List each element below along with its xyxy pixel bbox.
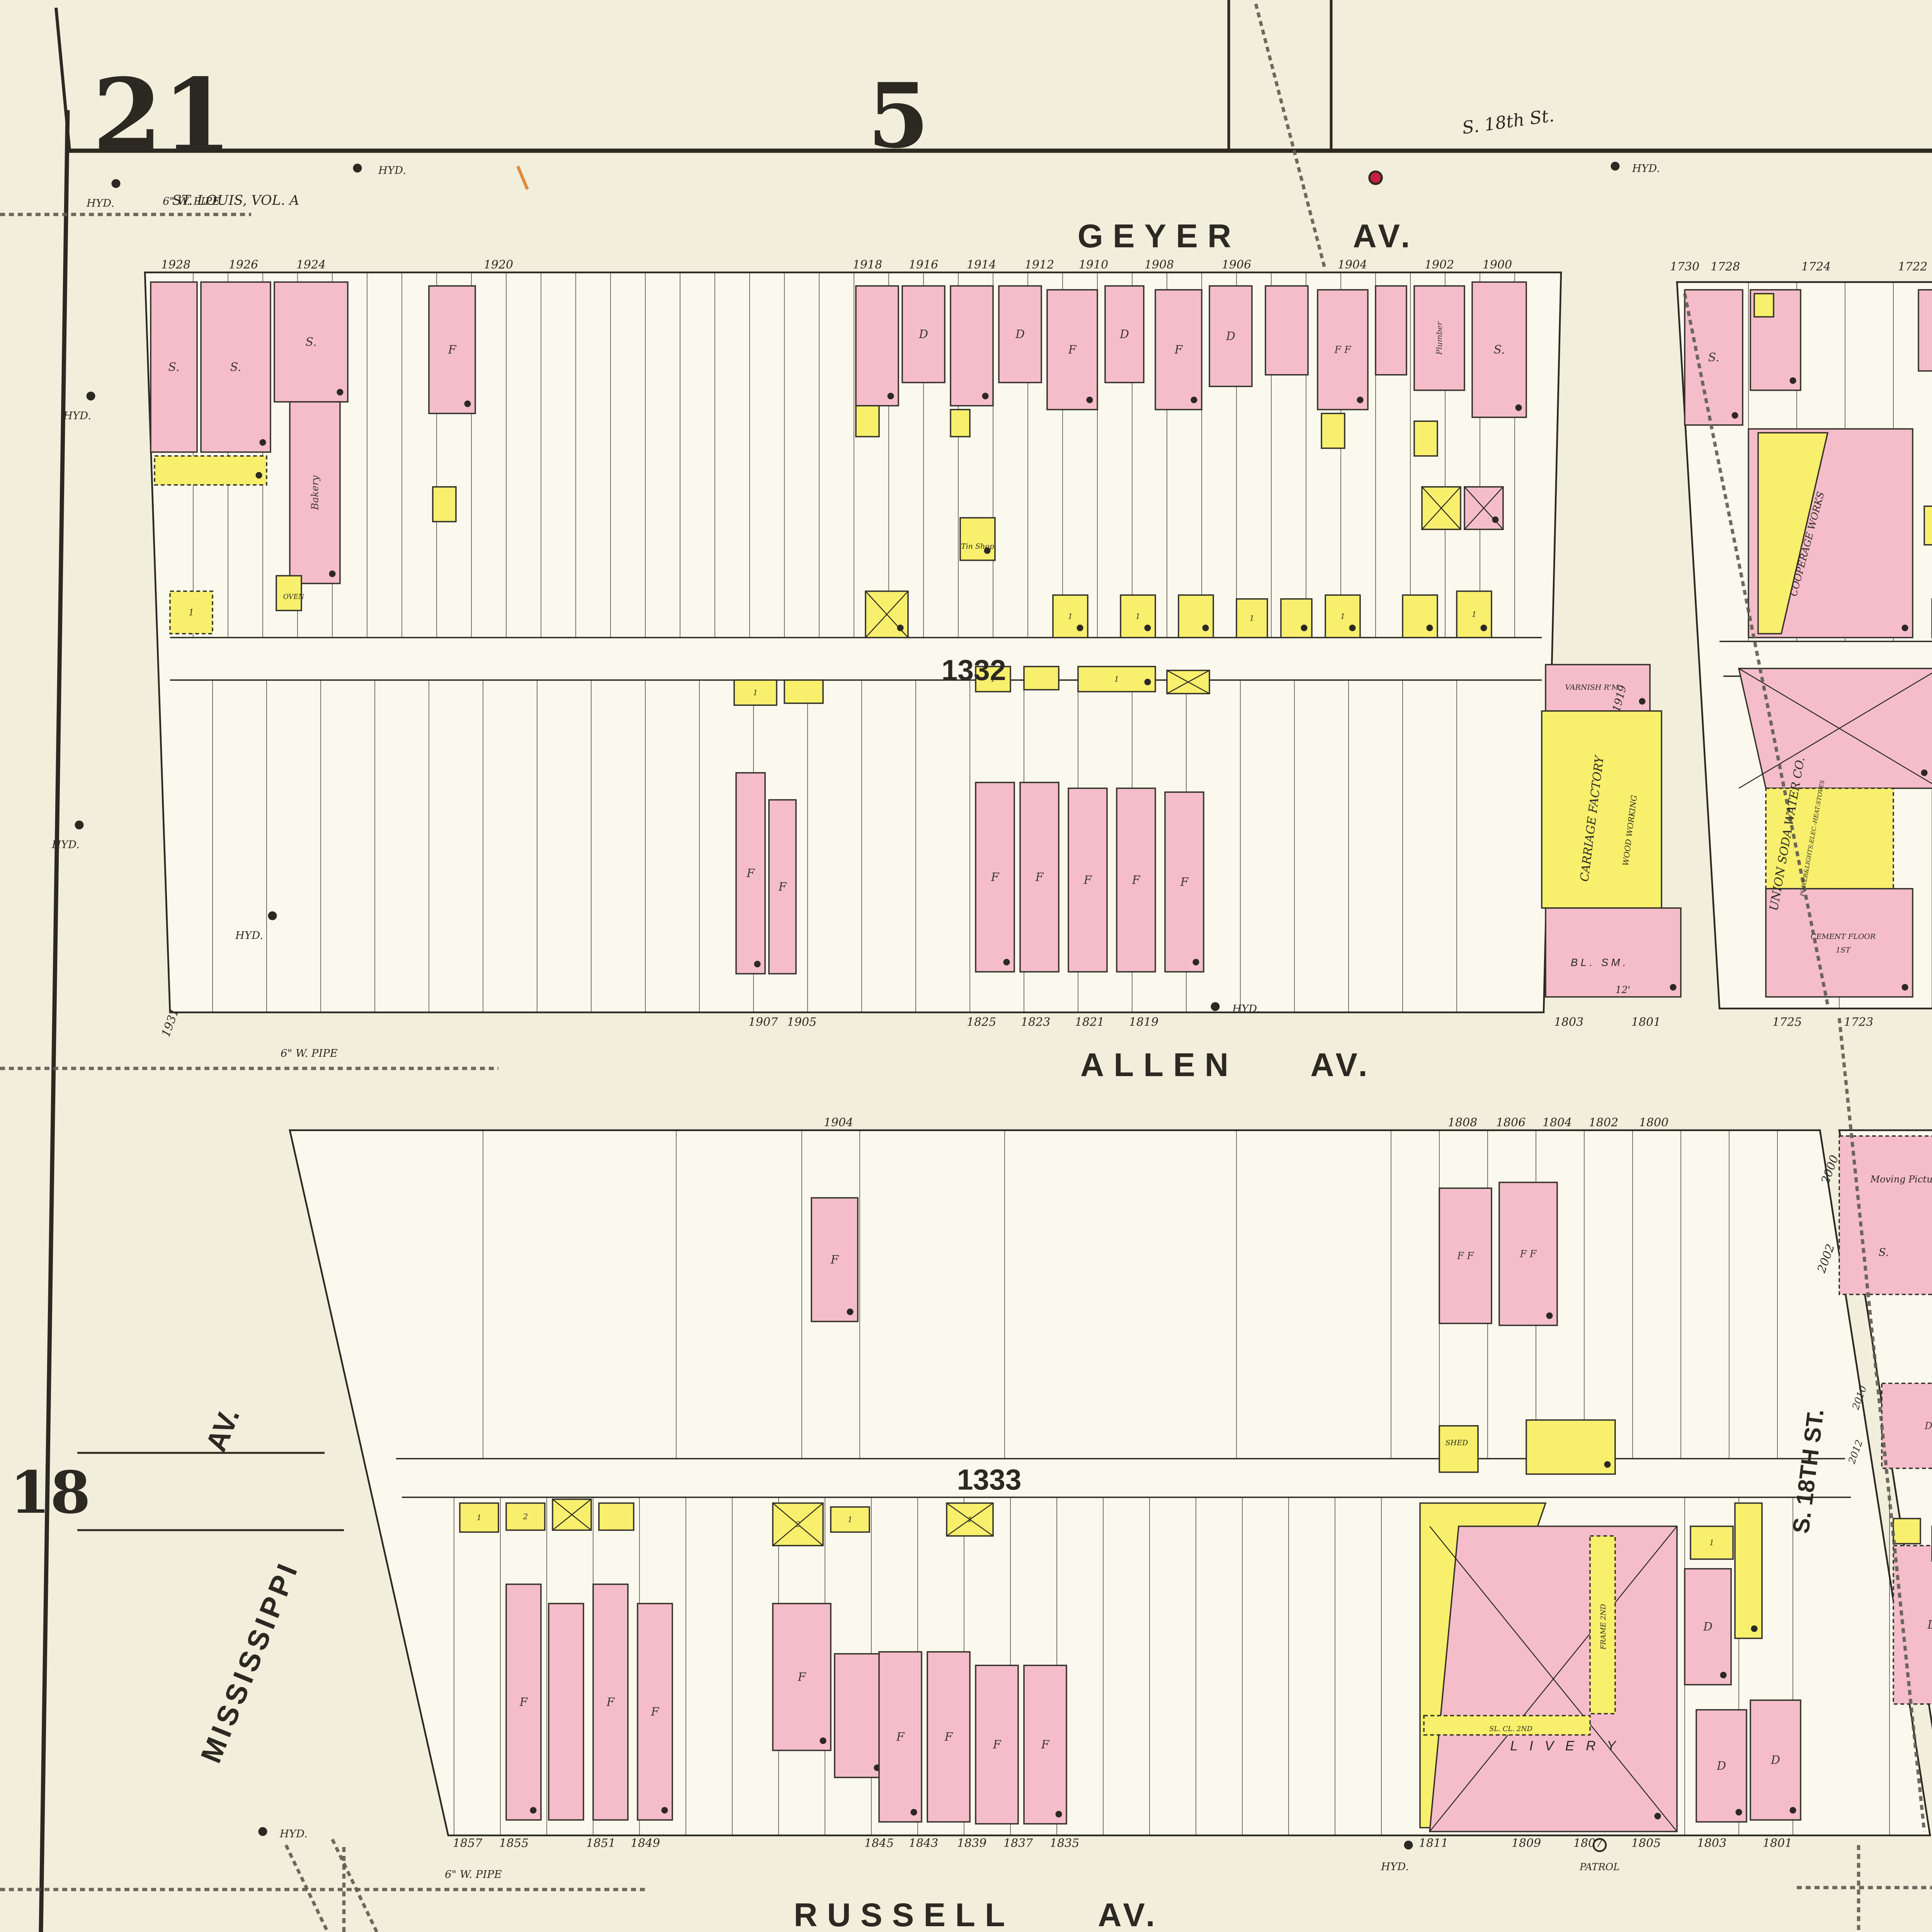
building-label: F [1174,343,1183,357]
hydrant-label: HYD. [1232,1003,1260,1015]
building-label: 2 [795,1520,801,1529]
hydrant-label: HYD. [279,1828,308,1840]
hydrant-icon [112,179,121,188]
firewall-dot [1003,959,1010,966]
hydrant-label: HYD. [1632,162,1660,175]
hydrant-icon [1404,1841,1413,1850]
building-label: 1 [1340,612,1345,621]
building-37-1: 1 [1457,591,1492,638]
firewall-dot [530,1807,537,1814]
building-41-f: F [769,800,796,974]
building-22 [1376,286,1406,375]
label-1804: 1804 [1543,1116,1572,1129]
building-11-d: D [902,286,945,383]
building-label: F [830,1253,839,1267]
building-99-f: F [638,1604,672,1820]
building-label: 1 [189,608,194,618]
label-1907: 1907 [748,1015,778,1029]
building-label: F [519,1696,528,1709]
street-geyer-av: AV. [1353,218,1414,255]
building-135-d-d: D D [1882,1383,1932,1468]
building-label: D [1119,328,1129,341]
building-116-d: D [1696,1710,1747,1822]
firewall-dot [1193,959,1199,966]
firewall-dot [1655,1813,1661,1820]
building-label: Bakery [309,475,320,510]
building-56 [1754,294,1774,317]
building-label: F F [1457,1250,1474,1261]
building-label: F [1041,1738,1050,1752]
building-64-d: D [1924,506,1932,545]
building-90 [1439,1426,1478,1472]
label-1835: 1835 [1050,1837,1079,1850]
building-label: F [991,871,1000,884]
building-39 [784,680,823,703]
building-28 [1464,487,1503,529]
street-russell-av: AV. [1098,1897,1159,1932]
firewall-dot [1902,984,1908,991]
building-98-f: F [593,1584,628,1820]
label-1723: 1723 [1844,1015,1873,1029]
label-1908: 1908 [1145,258,1174,272]
label-1730: 1730 [1670,260,1699,274]
building-94 [553,1499,591,1530]
sheet-number-5: 5 [867,64,929,168]
building-label: S. [168,361,179,374]
label-1801: 1801 [1631,1015,1661,1029]
hydrant-icon [75,821,84,830]
building-6-1: 1 [170,591,213,634]
building-13 [951,410,970,437]
firewall-dot [847,1309,854,1315]
building-16-d: D [1105,286,1144,383]
firewall-dot [982,393,989,400]
building-88-f-f: F F [1439,1188,1492,1323]
volume-label: ST. LOUIS, VOL. A [172,193,299,208]
label-1924: 1924 [296,258,326,272]
label-1910: 1910 [1079,258,1108,272]
building-117-d: D [1750,1700,1801,1820]
firewall-dot [256,472,262,479]
label-cement-floor: CEMENT FLOOR [1811,932,1876,941]
label-1926: 1926 [229,258,258,272]
label-12-: 12' [1616,984,1631,995]
building-26 [1414,421,1437,456]
label-1803: 1803 [1697,1837,1726,1850]
firewall-dot [1790,1807,1796,1814]
sheet-number-21: 21 [92,57,232,175]
label-1801: 1801 [1763,1837,1792,1850]
pipe-label: 6" W. PIPE [281,1047,338,1060]
building-label: F [778,880,787,894]
firewall-dot [1515,405,1522,411]
label-1920: 1920 [484,258,513,272]
firewall-dot [662,1807,668,1814]
building-95 [599,1503,634,1530]
label-1843: 1843 [909,1837,938,1850]
firewall-dot [1056,1811,1062,1818]
label-s-: S. [1879,1246,1889,1259]
label-sl-cl-2nd: SL. CL. 2ND [1489,1725,1532,1733]
building-96-f: F [506,1584,541,1820]
street-allen-av: AV. [1310,1047,1371,1083]
label-1928: 1928 [161,258,190,272]
building-76 [1766,889,1913,997]
building-54-s-: S. [1685,290,1743,425]
building-29 [866,591,908,638]
building-label: D [1716,1759,1726,1773]
street-allen: ALLEN [1080,1047,1238,1083]
firewall-dot [1202,624,1209,631]
building-31-1: 1 [1121,595,1155,638]
firewall-dot [820,1738,827,1744]
building-101-1: 1 [831,1507,869,1532]
building-label: F [448,343,457,357]
building-label: 2 [523,1512,528,1521]
building-label: 1 [477,1513,482,1522]
building-label: 1 [1250,614,1255,623]
firewall-dot [1921,769,1928,776]
block-1333: 1333 [957,1463,1022,1496]
building-label: D [1770,1753,1780,1767]
building-47-f: F [1020,782,1059,972]
sheet-number-18: 18 [10,1459,91,1527]
patrol-label: PATROL [1579,1861,1620,1872]
label-1809: 1809 [1512,1837,1541,1850]
label-1905: 1905 [787,1015,816,1029]
firewall-dot [1751,1626,1758,1632]
label-1722: 1722 [1898,260,1927,274]
building-label: S. [305,335,316,349]
building-label: F [1083,874,1092,887]
firewall-dot [1077,624,1083,631]
building-label: F [1035,871,1044,884]
street-geyer: GEYER [1078,218,1241,255]
label-1802: 1802 [1589,1116,1618,1129]
building-35-1: 1 [1325,595,1360,638]
building-label: S. [230,361,241,374]
building-label: F [1132,874,1141,887]
building-17-f: F [1155,290,1202,410]
building-label: D D [1924,1420,1932,1431]
building-label: F [746,867,755,880]
building-7-f: F [429,286,475,413]
building-45 [1167,670,1209,694]
building-label: 1 [1472,610,1477,619]
building-108-f: F [1024,1665,1066,1824]
firewall-dot [1087,397,1093,403]
firewall-dot [1546,1313,1553,1319]
building-40-f: F [736,773,765,974]
fire-alarm-box-icon [1369,172,1382,184]
label-1800: 1800 [1639,1116,1668,1129]
building-label: F [896,1730,905,1744]
hydrant-icon [353,163,362,172]
building-19 [960,518,995,560]
label-1912: 1912 [1025,258,1054,272]
building-label: D [1927,1618,1932,1632]
label-1906: 1906 [1222,258,1251,272]
label-1st: 1ST [1836,946,1851,954]
label-1904: 1904 [824,1116,853,1129]
label-moving-pictures: Moving Pictures [1870,1174,1932,1185]
label-1728: 1728 [1711,260,1740,274]
label-shed: SHED [1446,1439,1468,1447]
building-label: 1 [1136,612,1141,621]
building-label: 1 [753,688,758,697]
building-label: D [918,328,928,341]
building-label: F [944,1730,953,1744]
label-1916: 1916 [909,258,938,272]
building-97 [549,1604,583,1820]
building-46-f: F [976,782,1014,972]
building-113-1: 1 [1690,1526,1733,1559]
building-32 [1179,595,1213,638]
building-label: S. [1708,351,1719,364]
firewall-dot [1481,624,1487,631]
label-1900: 1900 [1483,258,1512,272]
building-102-f: F [773,1604,831,1750]
building-114 [1735,1503,1762,1638]
label-frame-2nd: FRAME 2ND [1599,1604,1607,1650]
firewall-dot [329,570,336,577]
label-1819: 1819 [1129,1015,1158,1029]
firewall-dot [1720,1672,1727,1679]
firewall-dot [260,439,266,446]
building-label: Plumber [1435,321,1444,355]
label-1823: 1823 [1021,1015,1050,1029]
label-1724: 1724 [1801,260,1831,274]
label-varnish-r-m: VARNISH R'M [1565,683,1619,692]
building-label: S. [1493,343,1505,357]
building-label: F [651,1705,660,1719]
firewall-dot [1349,624,1356,631]
building-label: D [1226,330,1235,343]
building-label: F [798,1670,806,1684]
building-8 [433,487,456,522]
label-1839: 1839 [957,1837,986,1850]
hydrant-label: HYD. [235,929,263,942]
firewall-dot [1145,624,1151,631]
hydrant-icon [268,912,277,920]
label-1857: 1857 [453,1837,483,1850]
label-1918: 1918 [853,258,882,272]
building-label: 1 [848,1515,853,1524]
firewall-dot [1492,516,1499,523]
firewall-dot [911,1809,917,1816]
firewall-dot [1670,984,1677,991]
building-21-f-f: F F [1318,290,1368,410]
building-24-s-: S. [1472,282,1526,417]
firewall-dot [464,401,471,407]
firewall-dot [1790,378,1796,384]
building-18-d: D [1209,286,1252,386]
building-74 [1739,668,1932,788]
building-33-1: 1 [1236,599,1267,638]
label-tin-shop: Tin Shop [961,542,994,551]
hydrant-icon [1611,162,1620,170]
firewall-dot [888,393,894,400]
building-59-d: D [1918,290,1932,371]
pipe-label: 6" W. PIPE [445,1868,502,1881]
label-1806: 1806 [1496,1116,1526,1129]
building-1-s-: S. [201,282,270,452]
building-38-1: 1 [734,680,777,705]
hydrant-icon [259,1827,267,1836]
firewall-dot [754,961,761,968]
building-50-f: F [1165,792,1204,972]
label-1837: 1837 [1003,1837,1033,1850]
building-34 [1281,599,1312,638]
label-1825: 1825 [967,1015,996,1029]
firewall-dot [1145,679,1151,685]
label-1845: 1845 [864,1837,894,1850]
building-label: 1 [968,1515,973,1524]
building-label: D [1015,328,1025,341]
building-3-bakery: Bakery [290,402,340,583]
building-27 [1422,487,1461,529]
firewall-dot [1639,698,1646,704]
building-104-1: 1 [947,1503,993,1536]
building-30-1: 1 [1053,595,1088,638]
label-1904: 1904 [1338,258,1367,272]
label-1855: 1855 [499,1837,529,1850]
building-20 [1265,286,1308,375]
firewall-dot [1357,397,1364,403]
hydrant-icon [1211,1002,1220,1011]
building-48-f: F [1068,788,1107,972]
building-36 [1403,595,1437,638]
building-87-f: F [811,1198,858,1321]
map-canvas: S.S.S.Bakery1FDDFDFDF FPlumberS.111111FF… [0,0,1932,1932]
firewall-dot [1732,412,1738,419]
label-1805: 1805 [1631,1837,1661,1850]
firewall-dot [1301,624,1308,631]
building-12 [951,286,993,406]
label-1914: 1914 [967,258,996,272]
label-oven: OVEN [283,593,304,601]
building-44-1: 1 [1078,667,1155,692]
building-5 [155,456,267,485]
building-133 [1893,1519,1920,1544]
building-23-plumber: Plumber [1414,286,1464,390]
firewall-dot [1427,624,1433,631]
label-1725: 1725 [1772,1015,1802,1029]
hydrant-icon [87,391,95,400]
firewall-dot [1736,1809,1742,1816]
building-15-f: F [1047,290,1097,410]
building-label: 1 [1709,1538,1714,1547]
label-1821: 1821 [1075,1015,1104,1029]
label-livery: LIVERY [1510,1738,1627,1753]
building-110 [1430,1526,1677,1832]
building-115-d: D [1685,1569,1731,1685]
building-92-1: 1 [460,1503,498,1532]
building-label: F F [1334,344,1352,355]
firewall-dot [1191,397,1197,403]
hydrant-label: HYD. [1381,1861,1409,1873]
firewall-dot [1902,624,1908,631]
label-1807: 1807 [1573,1837,1603,1850]
building-53 [1546,908,1681,997]
building-100-2: 2 [773,1503,823,1546]
building-label: F [1068,343,1077,357]
firewall-dot [897,624,904,631]
sanborn-map-sheet: S.S.S.Bakery1FDDFDFDF FPlumberS.111111FF… [0,0,1932,1932]
building-105-f: F [879,1652,922,1822]
building-103 [835,1654,885,1777]
label-1851: 1851 [586,1837,616,1850]
building-89-f-f: F F [1499,1182,1557,1325]
building-0-s-: S. [151,282,197,452]
building-14-d: D [999,286,1041,383]
building-106-f: F [927,1652,970,1822]
firewall-dot [1604,1461,1611,1468]
building-134-d: D [1893,1546,1932,1704]
building-10 [856,406,879,437]
label-1811: 1811 [1419,1837,1448,1850]
firewall-dot [337,389,344,396]
hydrant-label: HYD. [86,197,114,209]
building-107-f: F [976,1665,1018,1824]
building-label: 1 [1068,612,1073,621]
building-label: F F [1520,1248,1537,1259]
building-label: 1 [1114,674,1119,684]
hydrant-label: HYD. [51,838,80,851]
block-1332: 1332 [942,654,1006,686]
hydrant-label: HYD. [378,164,406,177]
label-1849: 1849 [631,1837,660,1850]
label-1803: 1803 [1554,1015,1583,1029]
building-label: F [606,1696,615,1709]
building-49-f: F [1117,788,1155,972]
label-1808: 1808 [1448,1116,1477,1129]
building-91 [1526,1420,1615,1474]
building-label: F [993,1738,1002,1752]
building-9 [856,286,898,406]
building-label: D [1703,1620,1713,1634]
building-93-2: 2 [506,1503,545,1530]
label-bl-sm-: BL. SM. [1571,956,1629,968]
building-43 [1024,667,1059,690]
building-2-s-: S. [274,282,348,402]
building-25 [1321,413,1345,448]
label-1902: 1902 [1425,258,1454,272]
hydrant-label: HYD. [63,410,91,422]
street-russell: RUSSELL [794,1897,1015,1932]
building-52 [1542,711,1662,908]
building-label: F [1180,876,1189,889]
